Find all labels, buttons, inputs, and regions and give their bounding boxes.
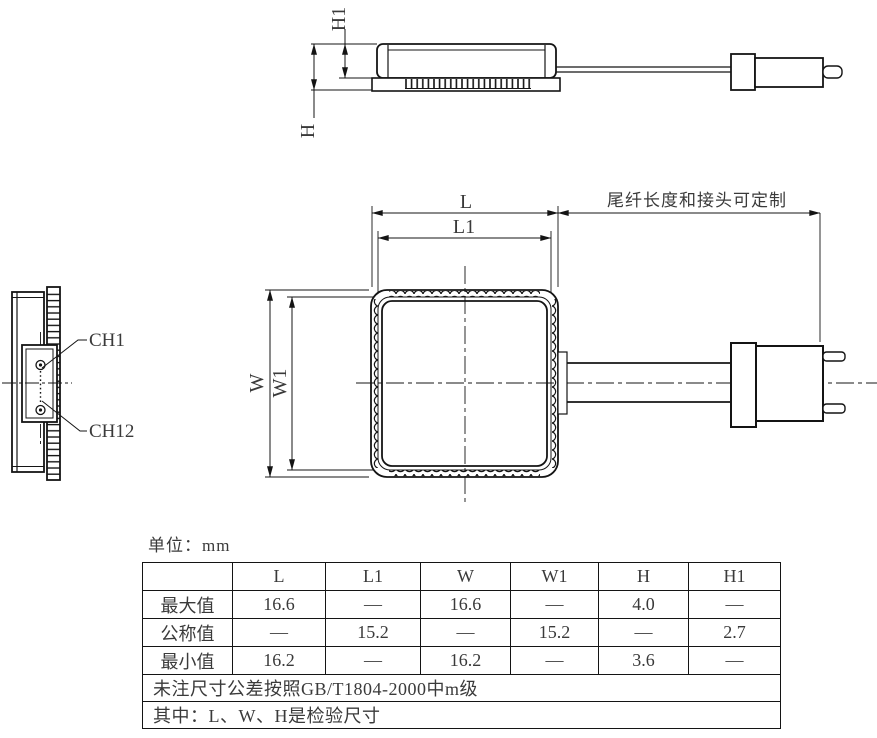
serration-bottom <box>389 470 540 476</box>
dimension-w-label: W <box>246 373 268 392</box>
cell-value: 16.6 <box>233 591 326 619</box>
table-row-nominal: 公称值 — 15.2 — 15.2 — 2.7 <box>143 619 781 647</box>
unit-label: 单位：mm <box>148 531 230 556</box>
tolerance-note: 未注尺寸公差按照GB/T1804-2000中m级 <box>143 675 781 702</box>
cell-value: 3.6 <box>599 647 689 675</box>
cell-value: — <box>689 647 781 675</box>
serration-top <box>389 291 540 297</box>
pigtail-note-label: 尾纤长度和接头可定制 <box>607 191 787 210</box>
cell-value: 16.6 <box>421 591 511 619</box>
cell-value: 4.0 <box>599 591 689 619</box>
header-cell-w1: W1 <box>511 563 599 591</box>
connector-pin-bottom <box>823 404 845 413</box>
cable-flange <box>558 352 567 414</box>
end-view: CH1 CH12 <box>2 287 134 480</box>
header-cell-h1: H1 <box>689 563 781 591</box>
dimension-l-label: L <box>460 191 472 213</box>
serration-left <box>372 299 378 468</box>
table-note-row-inspection: 其中：L、W、H是检验尺寸 <box>143 702 781 729</box>
cell-value: — <box>233 619 326 647</box>
connector-boot-profile <box>731 54 755 90</box>
cell-value: 2.7 <box>689 619 781 647</box>
cell-value: — <box>689 591 781 619</box>
dimension-h-label: H <box>297 124 319 138</box>
header-cell-blank <box>143 563 233 591</box>
technical-drawing: H1 H <box>0 0 877 560</box>
table-row-min: 最小值 16.2 — 16.2 — 3.6 — <box>143 647 781 675</box>
connector-boot-plan <box>731 343 756 427</box>
cell-value: 15.2 <box>326 619 421 647</box>
inspection-note: 其中：L、W、H是检验尺寸 <box>143 702 781 729</box>
connector-plan <box>731 343 845 427</box>
row-label: 最大值 <box>143 591 233 619</box>
header-cell-h: H <box>599 563 689 591</box>
cell-value: — <box>326 591 421 619</box>
serration-right <box>551 299 557 468</box>
cell-value: — <box>511 591 599 619</box>
dimension-w1-label: W1 <box>269 369 291 398</box>
connector-body-plan <box>756 346 823 421</box>
dimension-l1-label: L1 <box>453 216 475 238</box>
plan-view: L L1 尾纤长度和接头可定制 W W1 <box>246 191 877 502</box>
header-cell-w: W <box>421 563 511 591</box>
cell-value: — <box>421 619 511 647</box>
connector-pin-profile <box>823 66 842 78</box>
row-label: 公称值 <box>143 619 233 647</box>
module-body-profile <box>377 44 556 78</box>
ch12-label: CH12 <box>89 421 134 442</box>
connector-body-profile <box>755 58 823 87</box>
cell-value: — <box>511 647 599 675</box>
table-note-row-tolerance: 未注尺寸公差按照GB/T1804-2000中m级 <box>143 675 781 702</box>
table-header-row: L L1 W W1 H H1 <box>143 563 781 591</box>
side-profile-view: H1 H <box>297 7 842 138</box>
ch1-label: CH1 <box>89 330 125 351</box>
header-cell-l1: L1 <box>326 563 421 591</box>
connector-profile <box>731 54 842 90</box>
cell-value: 16.2 <box>421 647 511 675</box>
dimension-spec-table: L L1 W W1 H H1 最大值 16.6 — 16.6 — 4.0 — 公… <box>142 562 781 729</box>
table-row-max: 最大值 16.6 — 16.6 — 4.0 — <box>143 591 781 619</box>
heatsink-fins <box>405 79 531 89</box>
module-body-plan <box>371 290 558 477</box>
dimension-h1-label: H1 <box>328 7 350 31</box>
fiber-cable-profile <box>556 67 731 72</box>
cell-value: 16.2 <box>233 647 326 675</box>
cell-value: 15.2 <box>511 619 599 647</box>
base-plate-profile <box>372 78 560 91</box>
cell-value: — <box>599 619 689 647</box>
cell-value: — <box>326 647 421 675</box>
header-cell-l: L <box>233 563 326 591</box>
row-label: 最小值 <box>143 647 233 675</box>
connector-pin-top <box>823 352 845 361</box>
drawing-sheet: H1 H <box>0 0 877 738</box>
